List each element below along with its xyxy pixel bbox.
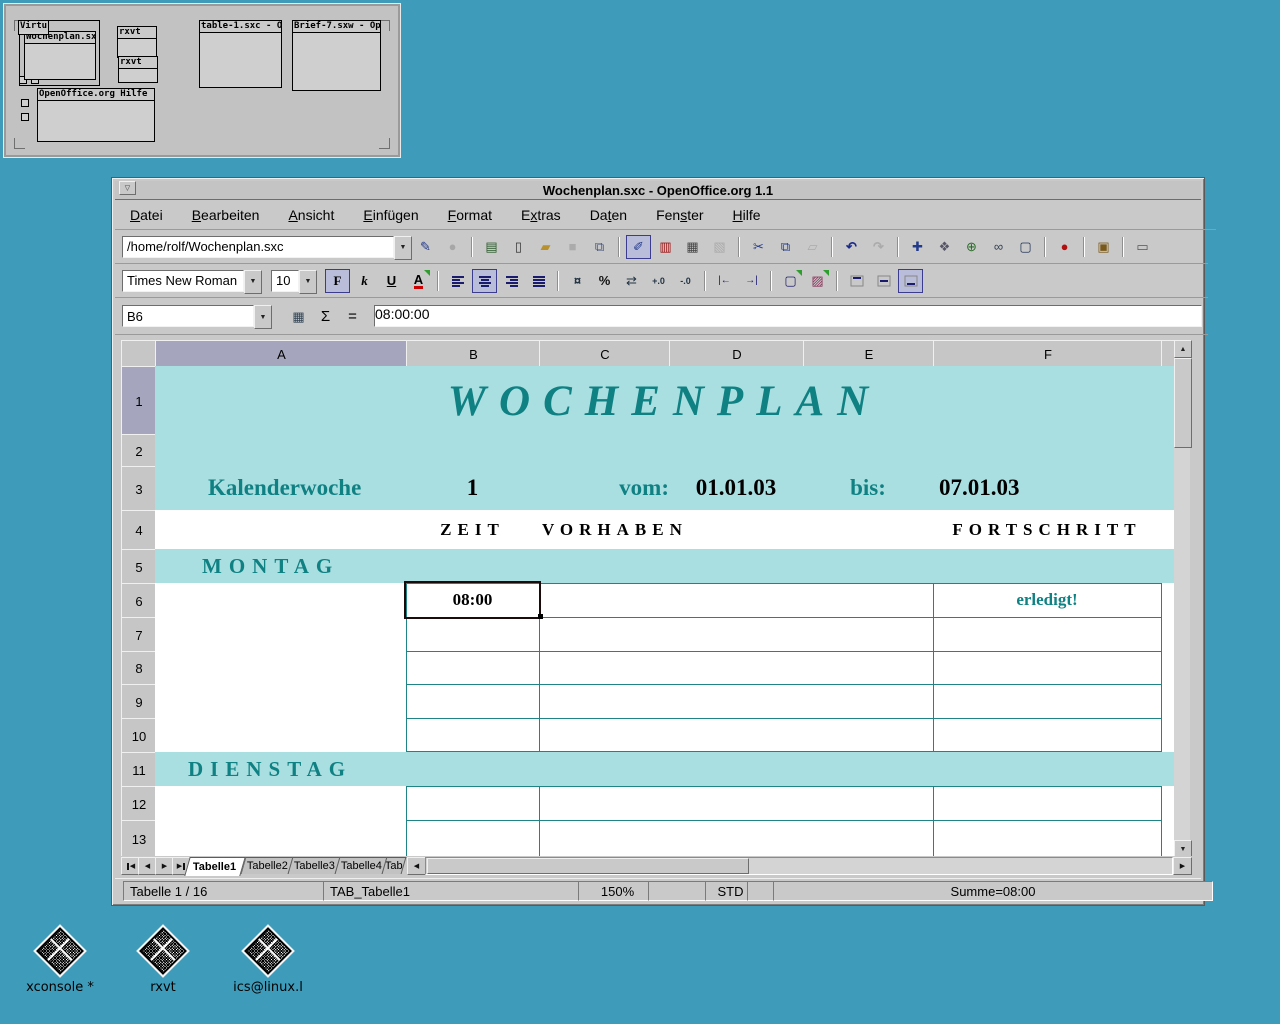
italic-button[interactable]: k xyxy=(352,269,377,293)
background-color-button[interactable]: ▨ xyxy=(805,269,830,293)
toolbar-separator xyxy=(897,237,899,257)
font-name-value[interactable]: Times New Roman xyxy=(122,270,244,292)
pager-corner-mark xyxy=(14,138,25,149)
sum-icon: Σ xyxy=(321,309,330,324)
font-color-button[interactable]: A xyxy=(406,269,431,293)
redo-icon: ↷ xyxy=(873,240,884,253)
align-middle-icon xyxy=(877,275,891,287)
align-left-icon xyxy=(451,275,465,287)
undo-icon: ↶ xyxy=(846,240,857,253)
redo-button[interactable]: ↷ xyxy=(866,235,891,259)
row-header-9[interactable]: 9 xyxy=(121,684,157,720)
dropdown-flag-icon xyxy=(823,270,829,276)
function-toolbar: /home/rolf/Wochenplan.sxc ▼ ✎ ● ▤ ▯ ▰ ■ … xyxy=(115,230,1208,264)
left-icon: ◀ xyxy=(130,862,135,870)
menu-datei[interactable]: Datei xyxy=(130,207,163,223)
new-template-icon: ▤ xyxy=(485,240,497,253)
gallery-doc-button[interactable]: ⊕ xyxy=(959,235,984,259)
font-color-icon: A xyxy=(414,273,423,289)
desktop: { "desktop": { "background": "#3f9bba", … xyxy=(0,0,1280,1024)
pager-mini-window-wochenplan[interactable]: Wochenplan.sx xyxy=(24,31,96,80)
gallery-icon: ▣ xyxy=(1097,240,1109,253)
desktop-pager[interactable]: Wochenplan.sx Virtu rxvt rxvt table-1.sx… xyxy=(4,4,400,157)
toolbar-separator xyxy=(831,237,833,257)
align-top-button[interactable] xyxy=(844,269,869,293)
mini-window-title: rxvt xyxy=(119,57,157,69)
function-wizard-button[interactable]: ▦ xyxy=(286,304,311,328)
horizontal-scroll-thumb[interactable] xyxy=(427,858,749,874)
row-header-3[interactable]: 3 xyxy=(121,466,157,512)
formula-button[interactable]: = xyxy=(340,304,365,328)
stylist-icon: ❖ xyxy=(939,240,951,253)
down-icon: ▼ xyxy=(1180,846,1187,853)
paste-icon: ▱ xyxy=(808,240,818,253)
toolbar-separator xyxy=(437,271,439,291)
add-decimal-button[interactable]: +.0 xyxy=(646,269,671,293)
column-header-e[interactable]: E xyxy=(803,340,935,368)
row-header-5[interactable]: 5 xyxy=(121,549,157,585)
cell-montag[interactable]: MONTAG xyxy=(202,549,339,583)
cut-button[interactable]: ✂ xyxy=(746,235,771,259)
left-icon: ◀ xyxy=(145,862,150,870)
menubar: Datei Bearbeiten Ansicht Einfügen Format… xyxy=(115,200,1216,230)
right-icon: ▶ xyxy=(162,862,167,870)
toolbar-separator xyxy=(1044,237,1046,257)
align-top-icon xyxy=(850,275,864,287)
screen-button[interactable]: ▢ xyxy=(1013,235,1038,259)
row-header-6[interactable]: 6 xyxy=(121,583,157,619)
align-left-button[interactable] xyxy=(445,269,470,293)
background-color-icon: ▨ xyxy=(811,274,823,287)
record-button[interactable]: ● xyxy=(1052,235,1077,259)
align-middle-button[interactable] xyxy=(871,269,896,293)
decrease-indent-icon: |← xyxy=(718,275,731,286)
toolbar-separator xyxy=(836,271,838,291)
align-center-button[interactable] xyxy=(472,269,497,293)
delete-decimal-button[interactable]: -.0 xyxy=(673,269,698,293)
status-zoom[interactable]: 150% xyxy=(578,881,657,901)
cell-vorhaben[interactable]: VORHABEN xyxy=(542,510,688,549)
save-all-button[interactable]: ⧉ xyxy=(587,235,612,259)
load-url-button[interactable]: ✎ xyxy=(413,235,438,259)
menu-bearbeiten[interactable]: Bearbeiten xyxy=(192,207,260,223)
dropdown-flag-icon xyxy=(796,270,802,276)
borders-icon: ▢ xyxy=(784,274,796,287)
row-header-1[interactable]: 1 xyxy=(121,366,157,436)
font-size-value[interactable]: 10 xyxy=(271,270,299,292)
cell-vom-label[interactable]: vom: xyxy=(539,466,669,510)
toolbar-separator xyxy=(738,237,740,257)
copy-button[interactable]: ⧉ xyxy=(773,235,798,259)
font-size-combobox[interactable]: 10 ▼ xyxy=(271,270,317,292)
cell-kalenderwoche-label[interactable]: Kalenderwoche xyxy=(208,466,361,510)
pager-mini-window-rxvt-top[interactable]: rxvt xyxy=(117,26,157,58)
pager-label-text: Virtu xyxy=(19,21,48,32)
align-center-icon xyxy=(478,275,492,287)
toolbar-separator xyxy=(770,271,772,291)
scroll-right-button[interactable]: ▶ xyxy=(1173,857,1192,875)
cell-bis-value[interactable]: 07.01.03 xyxy=(939,466,1020,510)
menu-format[interactable]: Format xyxy=(448,207,492,223)
row-header-13[interactable]: 13 xyxy=(121,820,157,856)
desktop-icon-label: rxvt xyxy=(115,980,211,995)
percent-format-button[interactable]: % xyxy=(592,269,617,293)
vertical-scrollbar[interactable]: ▲ ▼ xyxy=(1174,340,1190,856)
screen-icon: ▢ xyxy=(1019,240,1031,253)
increase-indent-button[interactable]: →| xyxy=(739,269,764,293)
row-header-7[interactable]: 7 xyxy=(121,617,157,653)
hyperlink-button[interactable]: ∞ xyxy=(986,235,1011,259)
navigator-icon: ✚ xyxy=(912,240,923,253)
window-menu-icon: ▽ xyxy=(125,184,130,192)
row-header-4[interactable]: 4 xyxy=(121,510,157,551)
edit-file-button[interactable]: ✐ xyxy=(626,235,651,259)
cell-title[interactable]: WOCHENPLAN xyxy=(155,368,1174,434)
toolbar-separator xyxy=(1122,237,1124,257)
standard-format-button[interactable]: ⇄ xyxy=(619,269,644,293)
spellcheck-icon: ▧ xyxy=(713,240,725,253)
pager-corner-mark xyxy=(379,138,390,149)
name-box-dropdown-button[interactable]: ▼ xyxy=(254,305,272,329)
align-right-icon xyxy=(505,275,519,287)
edit-stamp-icon: ✎ xyxy=(420,240,431,253)
gallery-button[interactable]: ▣ xyxy=(1091,235,1116,259)
sheet-grid[interactable]: WOCHENPLAN Kalenderwoche 1 vom: 01.01.03… xyxy=(155,366,1174,856)
url-combobox[interactable]: /home/rolf/Wochenplan.sxc ▼ xyxy=(122,236,412,258)
menu-extras[interactable]: Extras xyxy=(521,207,561,223)
sheet-area: A B C D E F 1 2 3 4 5 6 7 8 9 10 11 12 1… xyxy=(115,340,1201,856)
name-box[interactable]: B6 ▼ xyxy=(122,305,272,327)
url-input[interactable]: /home/rolf/Wochenplan.sxc xyxy=(122,236,394,258)
sheet-tab-tabelle1[interactable]: Tabelle1 xyxy=(184,857,245,876)
pager-checkbox[interactable] xyxy=(21,113,29,121)
pager-mini-window-hilfe[interactable]: OpenOffice.org Hilfe - xyxy=(37,88,155,142)
dropdown-flag-icon xyxy=(424,270,430,276)
cell-erledigt[interactable]: erledigt! xyxy=(933,583,1161,617)
terminal-icon xyxy=(244,927,292,975)
scroll-up-button[interactable]: ▲ xyxy=(1174,340,1192,358)
sum-button[interactable]: Σ xyxy=(313,304,338,328)
currency-icon: ¤ xyxy=(574,274,581,287)
toolbar-separator xyxy=(704,271,706,291)
pager-mini-window-rxvt-bottom[interactable]: rxvt xyxy=(118,56,158,83)
font-size-dropdown-button[interactable]: ▼ xyxy=(299,270,317,294)
borders-button[interactable]: ▢ xyxy=(778,269,803,293)
toolbar-separator xyxy=(1083,237,1085,257)
align-justify-icon xyxy=(532,275,546,287)
mini-window-title: table-1.sxc - Op xyxy=(200,21,281,33)
vertical-scroll-thumb[interactable] xyxy=(1174,358,1192,448)
mini-window-title: rxvt xyxy=(118,27,156,39)
cell-reference[interactable]: B6 xyxy=(122,305,254,327)
status-sum: Summe=08:00 xyxy=(773,881,1213,901)
xconsole-icon xyxy=(36,927,84,975)
desktop-icon-xconsole[interactable]: xconsole * xyxy=(12,934,108,995)
window-menu-button[interactable]: ▽ xyxy=(119,181,136,195)
rxvt-icon xyxy=(139,927,187,975)
desktop-icon-label: xconsole * xyxy=(12,980,108,995)
cell-b6-value: 08:00 xyxy=(453,590,493,610)
desktop-icon-rxvt[interactable]: rxvt xyxy=(115,934,211,995)
underline-icon: U xyxy=(387,274,396,287)
dropdown-icon: ▼ xyxy=(260,314,267,321)
cell-vom-value[interactable]: 01.01.03 xyxy=(669,466,803,510)
openoffice-window: Wochenplan.sxc - OpenOffice.org 1.1 ▽ Da… xyxy=(112,178,1204,905)
cut-icon: ✂ xyxy=(753,240,764,253)
undo-button[interactable]: ↶ xyxy=(839,235,864,259)
formula-input[interactable]: 08:00:00 xyxy=(374,305,1202,327)
save-icon: ■ xyxy=(569,240,577,253)
navigator-button[interactable]: ✚ xyxy=(905,235,930,259)
sheet-tab-tabelle3[interactable]: Tabelle3 xyxy=(288,857,341,874)
print-button[interactable]: ▦ xyxy=(680,235,705,259)
print-icon: ▦ xyxy=(686,240,698,253)
export-pdf-icon: ▥ xyxy=(659,240,671,253)
align-right-button[interactable] xyxy=(499,269,524,293)
sheet-tab-bar: ◀ ◀ ▶ ▶ Tabelle1 Tabelle2 Tabelle3 Tabel… xyxy=(115,856,1201,875)
fill-handle[interactable] xyxy=(538,614,543,619)
menu-einfuegen[interactable]: Einfügen xyxy=(363,207,418,223)
pager-label: Virtu xyxy=(18,20,49,35)
column-header-c[interactable]: C xyxy=(539,340,671,368)
standard-format-icon: ⇄ xyxy=(626,274,637,287)
sheet-tab-tabelle4[interactable]: Tabelle4 xyxy=(335,857,388,874)
align-justify-button[interactable] xyxy=(526,269,551,293)
dropdown-icon: ▼ xyxy=(250,278,257,285)
up-icon: ▲ xyxy=(1180,346,1187,353)
column-header-d[interactable]: D xyxy=(669,340,805,368)
align-bottom-icon xyxy=(904,275,918,287)
spellcheck-button[interactable]: ▧ xyxy=(707,235,732,259)
copy-icon: ⧉ xyxy=(781,240,790,253)
stop-icon: ● xyxy=(449,240,457,253)
italic-icon: k xyxy=(361,274,368,287)
menu-daten[interactable]: Daten xyxy=(590,207,627,223)
export-pdf-button[interactable]: ▥ xyxy=(653,235,678,259)
status-bar: Tabelle 1 / 16 TAB_Tabelle1 150% STD Sum… xyxy=(115,878,1201,901)
datasource-button[interactable]: ▭ xyxy=(1130,235,1155,259)
function-wizard-icon: ▦ xyxy=(292,310,304,323)
cell-fortschritt[interactable]: FORTSCHRITT xyxy=(933,510,1161,549)
cell-kalenderwoche-value[interactable]: 1 xyxy=(406,466,539,510)
save-all-icon: ⧉ xyxy=(595,240,604,253)
desktop-icon-terminal[interactable]: ics@linux.l xyxy=(220,934,316,995)
open-button[interactable]: ▰ xyxy=(533,235,558,259)
bold-icon: F xyxy=(334,274,342,287)
mini-window-title: OpenOffice.org Hilfe - xyxy=(38,89,154,101)
scroll-down-button[interactable]: ▼ xyxy=(1174,840,1192,856)
new-document-button[interactable]: ▯ xyxy=(506,235,531,259)
pager-checkbox[interactable] xyxy=(21,99,29,107)
pager-mini-window-brief[interactable]: Brief-7.sxw - Ope xyxy=(292,20,381,91)
dropdown-icon: ▼ xyxy=(305,278,312,285)
scroll-left-button[interactable]: ◀ xyxy=(407,857,426,875)
window-titlebar[interactable]: Wochenplan.sxc - OpenOffice.org 1.1 xyxy=(115,181,1201,200)
currency-format-button[interactable]: ¤ xyxy=(565,269,590,293)
status-sheet-info: Tabelle 1 / 16 xyxy=(123,881,335,901)
desktop-icon-label: ics@linux.l xyxy=(220,980,316,995)
edit-file-icon: ✐ xyxy=(633,240,644,253)
increase-indent-icon: →| xyxy=(745,275,758,286)
menu-ansicht[interactable]: Ansicht xyxy=(288,207,334,223)
hyperlink-icon: ∞ xyxy=(994,240,1003,253)
row-header-10[interactable]: 10 xyxy=(121,718,157,754)
gallery-doc-icon: ⊕ xyxy=(966,240,977,253)
cell-cursor-b6[interactable]: 08:00 xyxy=(404,581,541,619)
select-all-corner[interactable] xyxy=(121,340,157,368)
toolbar-separator xyxy=(471,237,473,257)
new-from-template-button[interactable]: ▤ xyxy=(479,235,504,259)
equals-icon: = xyxy=(348,309,357,324)
toolbar-separator xyxy=(557,271,559,291)
stop-button[interactable]: ● xyxy=(440,235,465,259)
stylist-button[interactable]: ❖ xyxy=(932,235,957,259)
right-icon: ▶ xyxy=(1180,862,1185,870)
paste-button[interactable]: ▱ xyxy=(800,235,825,259)
cell-dienstag[interactable]: DIENSTAG xyxy=(188,752,352,786)
menu-hilfe[interactable]: Hilfe xyxy=(733,207,761,223)
right-icon: ▶ xyxy=(177,862,182,870)
toolbar-separator xyxy=(618,237,620,257)
row-header-8[interactable]: 8 xyxy=(121,651,157,686)
font-name-combobox[interactable]: Times New Roman ▼ xyxy=(122,270,262,292)
column-header-a[interactable]: A xyxy=(155,340,408,368)
row-header-2[interactable]: 2 xyxy=(121,434,157,468)
column-header-f[interactable]: F xyxy=(933,340,1163,368)
align-bottom-button[interactable] xyxy=(898,269,923,293)
menu-fenster[interactable]: Fenster xyxy=(656,207,703,223)
record-icon: ● xyxy=(1061,240,1069,253)
status-page-style[interactable]: TAB_Tabelle1 xyxy=(323,881,587,901)
bold-button[interactable]: F xyxy=(325,269,350,293)
formula-bar: B6 ▼ ▦ Σ = 08:00:00 xyxy=(115,298,1208,335)
url-dropdown-button[interactable]: ▼ xyxy=(394,236,412,260)
row-header-12[interactable]: 12 xyxy=(121,786,157,822)
add-decimal-icon: +.0 xyxy=(652,276,665,286)
open-folder-icon: ▰ xyxy=(541,240,551,253)
save-button[interactable]: ■ xyxy=(560,235,585,259)
dropdown-icon: ▼ xyxy=(400,244,407,251)
percent-icon: % xyxy=(599,274,611,287)
new-document-icon: ▯ xyxy=(515,240,522,253)
format-toolbar: Times New Roman ▼ 10 ▼ F k U A ¤ % ⇄ xyxy=(115,264,1208,298)
delete-decimal-icon: -.0 xyxy=(680,276,691,286)
column-header-b[interactable]: B xyxy=(406,340,541,368)
row-header-11[interactable]: 11 xyxy=(121,752,157,788)
left-icon: ◀ xyxy=(414,862,419,870)
sheet-tab-truncated[interactable]: Tab xyxy=(382,857,407,874)
cell-bis-label[interactable]: bis: xyxy=(803,466,933,510)
mini-window-title: Brief-7.sxw - Ope xyxy=(293,21,380,33)
font-name-dropdown-button[interactable]: ▼ xyxy=(244,270,262,294)
window-title: Wochenplan.sxc - OpenOffice.org 1.1 xyxy=(543,183,773,198)
datasource-icon: ▭ xyxy=(1136,240,1148,253)
sheet-tab-tabelle2[interactable]: Tabelle2 xyxy=(241,857,294,874)
pager-mini-window-table[interactable]: table-1.sxc - Op xyxy=(199,20,282,88)
horizontal-scrollbar[interactable] xyxy=(425,857,1173,875)
cell-zeit[interactable]: ZEIT xyxy=(406,510,539,549)
underline-button[interactable]: U xyxy=(379,269,404,293)
decrease-indent-button[interactable]: |← xyxy=(712,269,737,293)
